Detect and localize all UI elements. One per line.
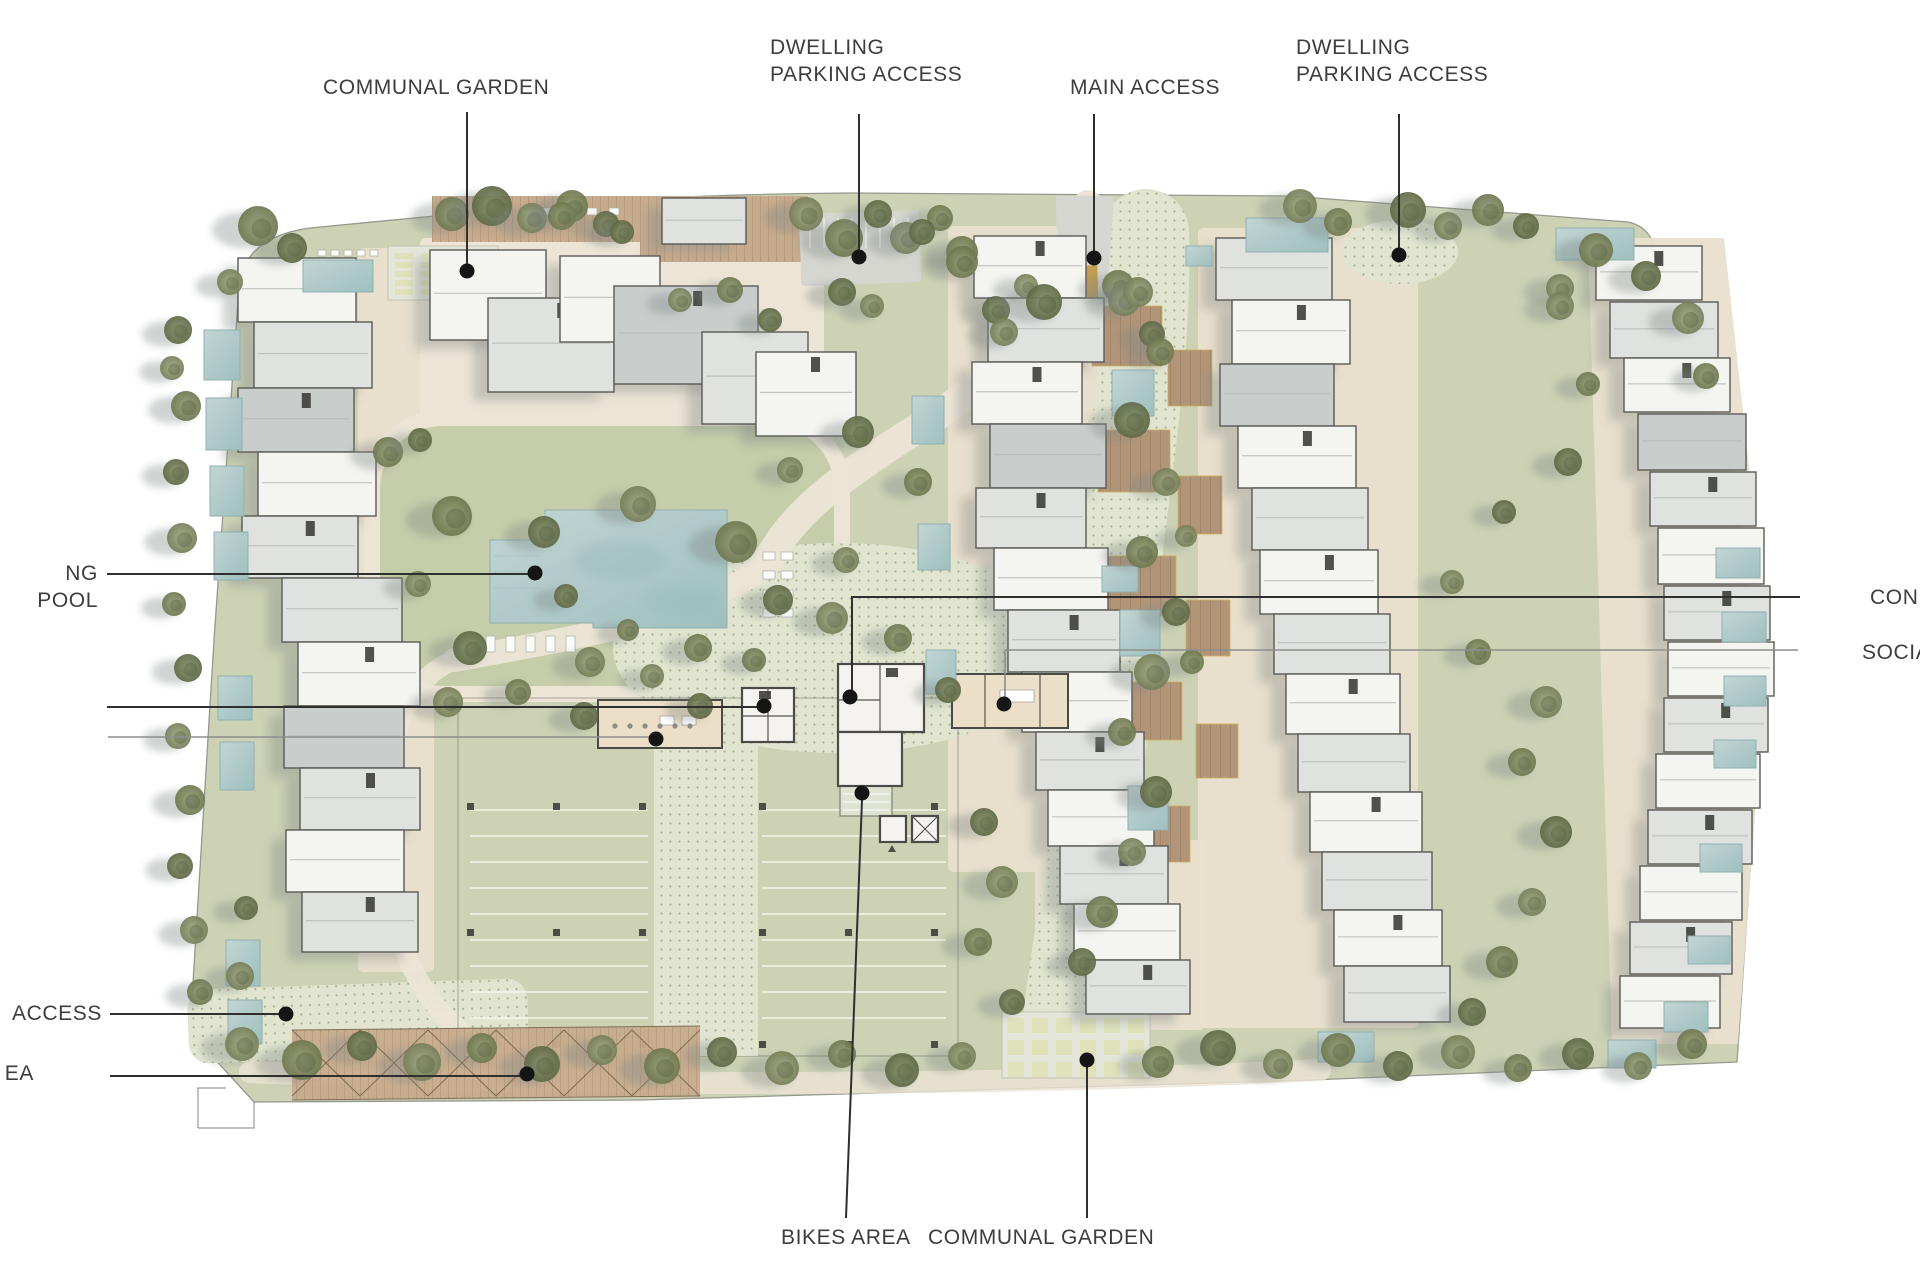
label-communal-garden-bottom: COMMUNAL GARDEN [928, 1224, 1154, 1251]
boundary-notch [198, 1088, 254, 1128]
label-dwelling-parking-right: DWELLING PARKING ACCESS [1296, 34, 1488, 88]
lap-pool [303, 260, 373, 292]
label-communal-garden-top: COMMUNAL GARDEN [323, 74, 549, 101]
site-plan [0, 0, 1920, 1280]
label-bikes-area: BIKES AREA [781, 1224, 911, 1251]
gym-building [742, 688, 794, 742]
label-main-access: MAIN ACCESS [1070, 74, 1220, 101]
label-concierge: CON [1870, 584, 1918, 611]
label-swimming-pool: NG POOL [0, 560, 98, 614]
label-social-club: SOCIA [1862, 639, 1920, 666]
label-dwelling-parking-left: DWELLING PARKING ACCESS [770, 34, 962, 88]
label-access: ACCESS [0, 1000, 102, 1027]
site-plan-sheet: COMMUNAL GARDEN DWELLING PARKING ACCESS … [0, 0, 1920, 1280]
label-area: EA [0, 1060, 34, 1087]
